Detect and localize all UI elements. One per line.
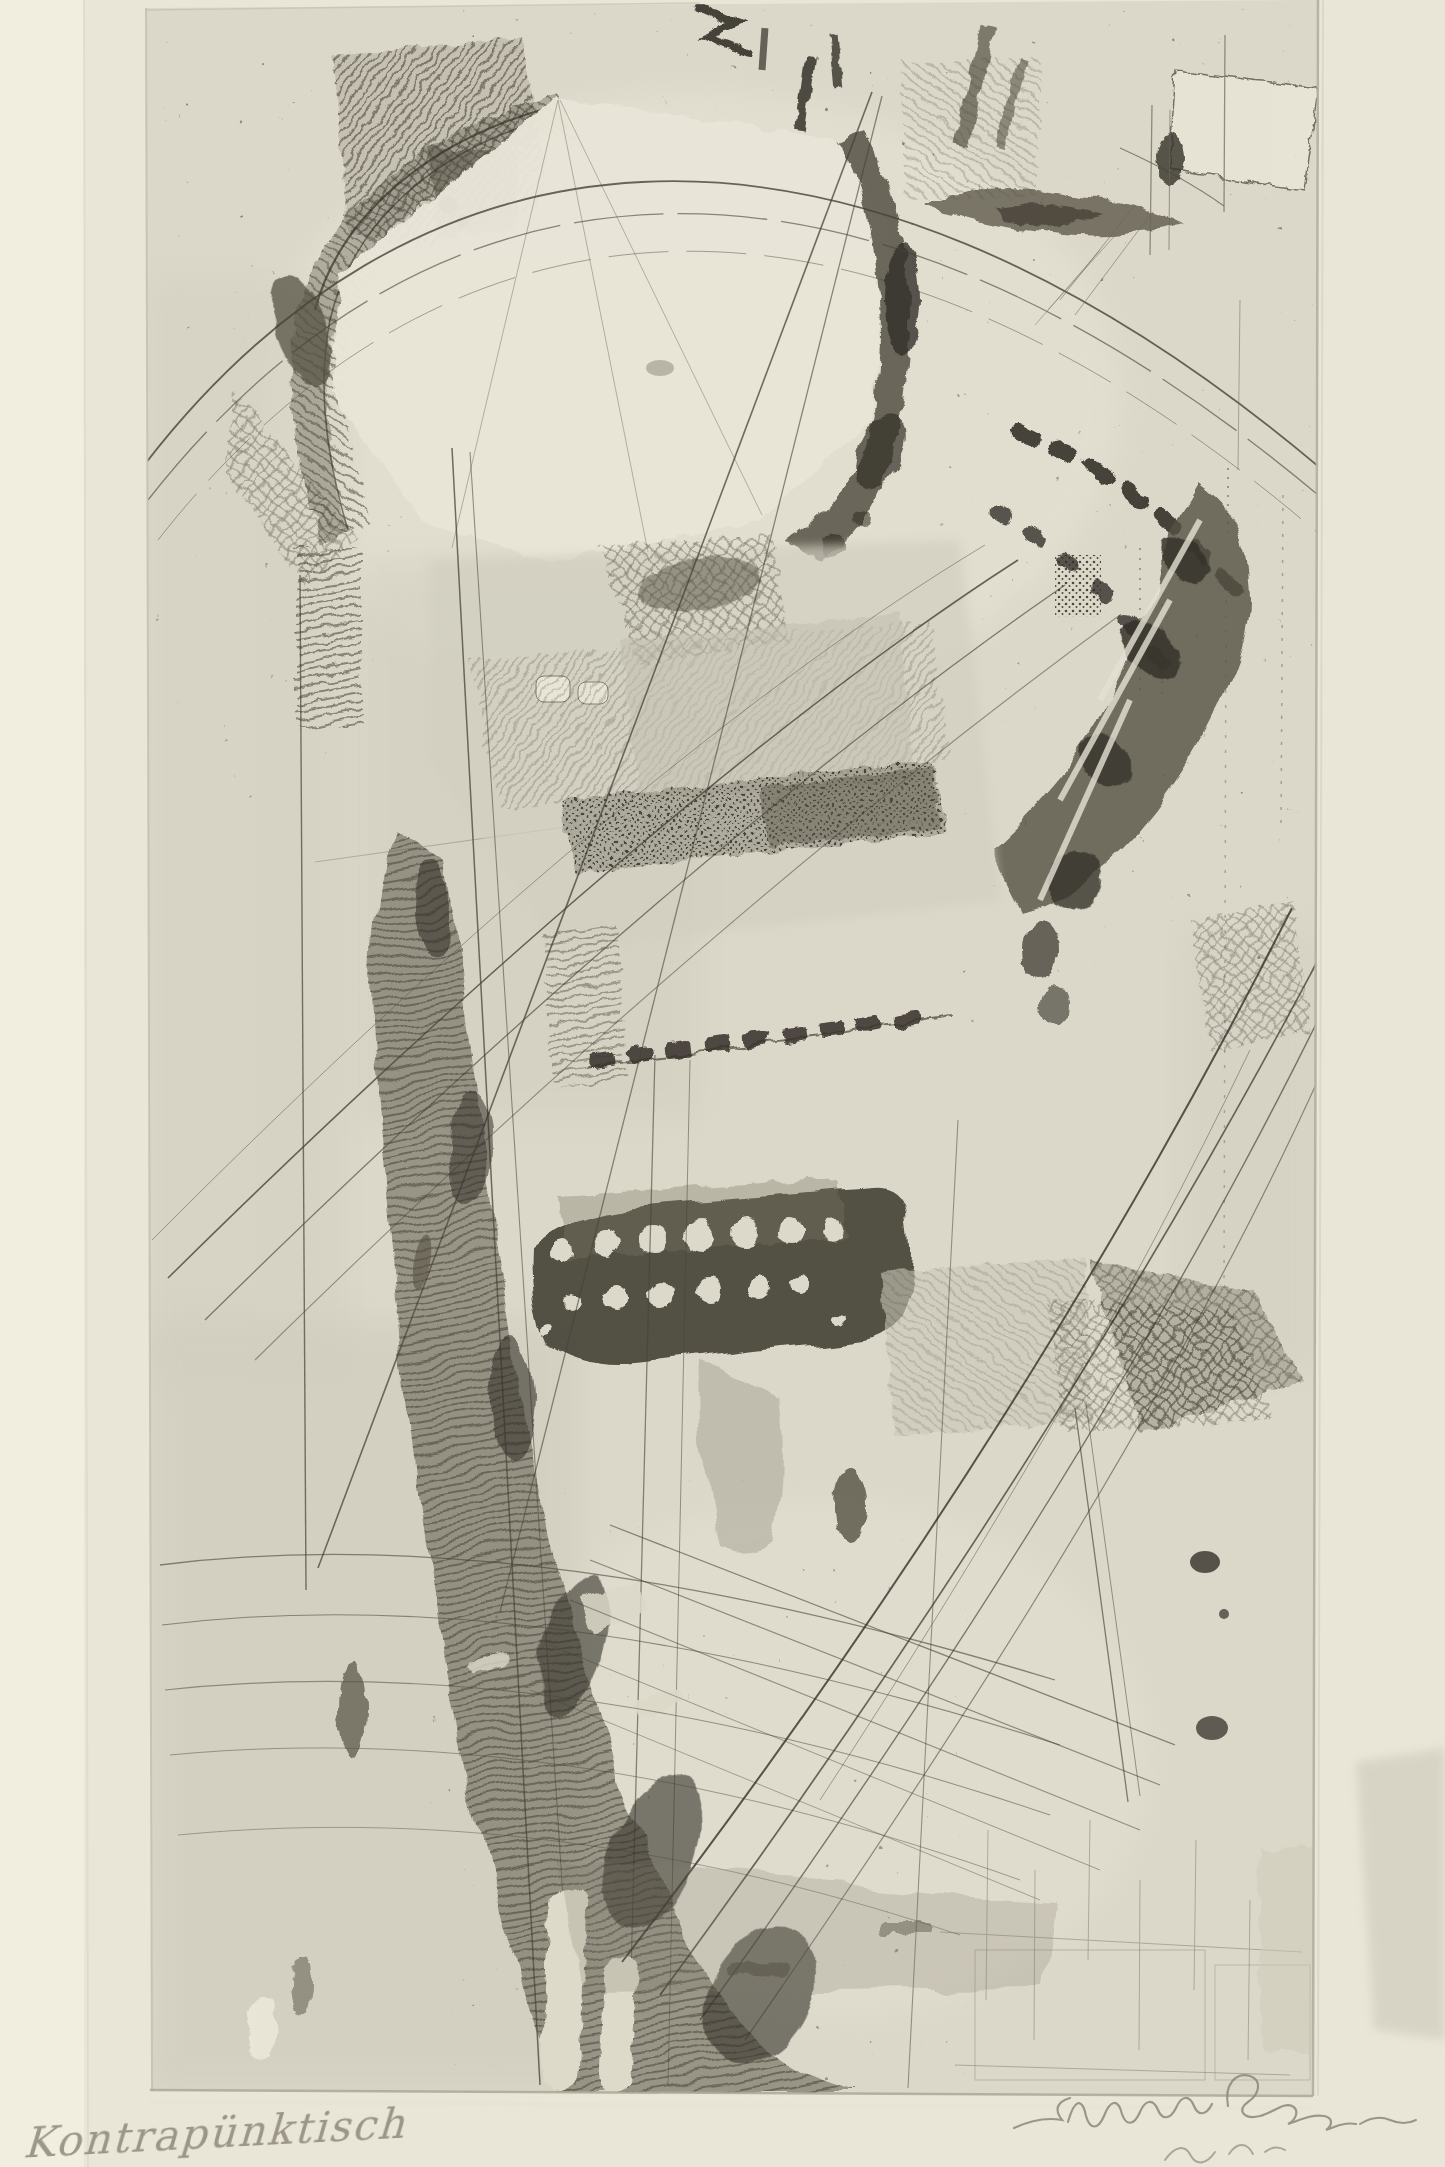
outlined-white-rectangle <box>1156 70 1318 190</box>
mat-left-strip <box>0 0 84 2167</box>
etching-artwork: Kontrapünktisch <box>0 0 1445 2167</box>
vertical-hatched-post <box>296 548 362 728</box>
plate-area <box>142 0 1332 2108</box>
photo-of-etching: Kontrapünktisch <box>0 0 1445 2167</box>
